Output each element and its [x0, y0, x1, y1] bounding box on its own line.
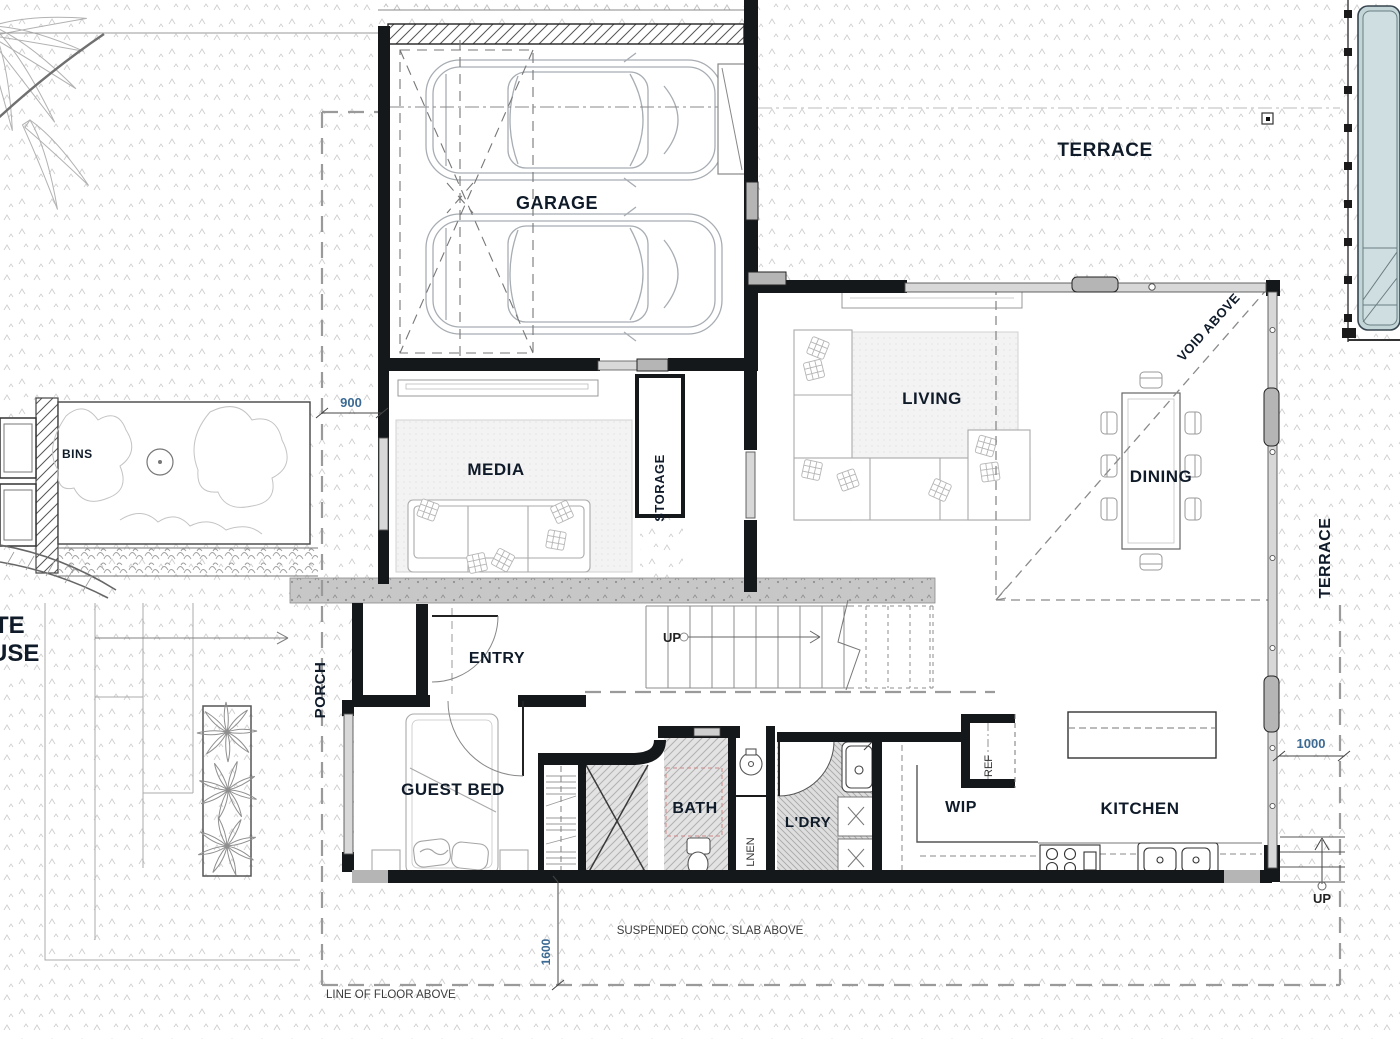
garage-south-wall — [378, 358, 600, 371]
laundry-trough — [842, 740, 876, 792]
floor-plan-canvas: GARAGE TERRACE MEDIA LIVING DINING ENTRY… — [0, 0, 1400, 1039]
laundry-east-wall — [872, 732, 882, 877]
room-label-garage: GARAGE — [516, 193, 598, 213]
note-line-of-floor: LINE OF FLOOR ABOVE — [326, 989, 456, 1001]
dim-900: 900 — [340, 395, 362, 410]
guest-west-window — [344, 714, 353, 854]
entry-wall-stub — [416, 604, 428, 696]
kitchen-island — [1068, 712, 1216, 758]
hall-east-wall — [744, 368, 757, 450]
hedge-strip — [58, 548, 318, 576]
room-label-wip: WIP — [945, 799, 977, 816]
south-wall — [352, 870, 1272, 883]
terrace-marker — [1262, 113, 1273, 124]
room-label-porch: PORCH — [312, 662, 329, 719]
room-label-dining: DINING — [1130, 467, 1193, 486]
sliding-door-panel-north — [1072, 277, 1118, 292]
sliding-door-panel-east-2 — [1264, 676, 1279, 732]
room-label-media: MEDIA — [467, 460, 524, 479]
room-label-kitchen: KITCHEN — [1100, 799, 1179, 818]
media-west-window — [379, 438, 388, 530]
floor-plan-drawing: GARAGE TERRACE MEDIA LIVING DINING ENTRY… — [0, 0, 1400, 1039]
room-label-storage: STORAGE — [652, 454, 667, 522]
note-suspended-slab: SUSPENDED CONC. SLAB ABOVE — [617, 925, 804, 937]
room-label-bath: BATH — [672, 800, 717, 817]
neighbour-text-2: USE — [0, 640, 39, 667]
room-label-laundry: L'DRY — [785, 814, 831, 831]
room-label-guest-bed: GUEST BED — [401, 780, 505, 799]
media-joinery — [398, 380, 598, 396]
room-label-terrace-east: TERRACE — [1317, 518, 1334, 599]
room-label-linen: LNEN — [745, 837, 757, 866]
room-label-living: LIVING — [902, 389, 962, 408]
stairs-up-label: UP — [663, 630, 681, 645]
room-label-bins: BINS — [62, 447, 93, 461]
room-label-ref: REF — [983, 755, 995, 777]
planter-bed — [58, 402, 310, 544]
dim-1600: 1600 — [539, 938, 553, 965]
east-glazed-wall — [1268, 292, 1277, 868]
guest-north-wall — [352, 695, 430, 707]
sliding-door-panel-east-1 — [1264, 388, 1279, 446]
room-label-entry: ENTRY — [469, 650, 525, 667]
garage-north-wall-hatched — [388, 24, 744, 44]
external-up-label: UP — [1313, 891, 1331, 906]
kitchen-north-wall — [777, 732, 963, 742]
neighbour-text-1: TE — [0, 612, 25, 639]
hall-south-wall — [538, 753, 636, 765]
garage-west-wall — [378, 26, 390, 370]
garden-west — [0, 398, 318, 598]
room-label-terrace-upper: TERRACE — [1057, 140, 1152, 161]
dim-1000: 1000 — [1297, 736, 1326, 751]
robe-shower-wall — [578, 765, 586, 877]
